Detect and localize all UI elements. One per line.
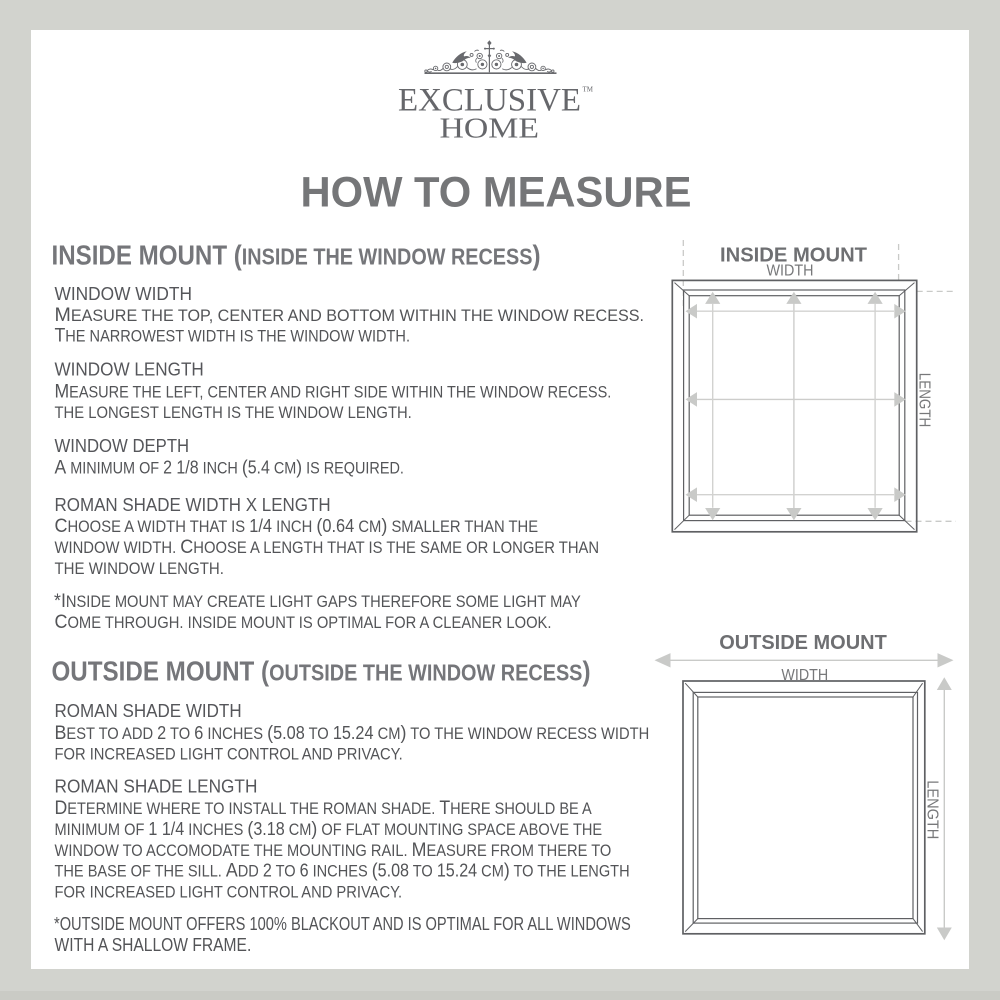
svg-text:COME THROUGH. INSIDE MOUNT IS: COME THROUGH. INSIDE MOUNT IS OPTIMAL FO… (55, 611, 552, 633)
svg-text:WIDTH: WIDTH (767, 263, 814, 280)
svg-text:WINDOW LENGTH: WINDOW LENGTH (55, 359, 204, 380)
svg-text:HOME: HOME (440, 113, 540, 145)
svg-text:THE BASE OF THE SILL. ADD 2 TO: THE BASE OF THE SILL. ADD 2 TO 6 INCHES … (55, 860, 630, 882)
svg-text:WINDOW TO ACCOMODATE THE MOUNT: WINDOW TO ACCOMODATE THE MOUNTING RAIL. … (55, 839, 612, 861)
svg-text:ROMAN SHADE WIDTH X LENGTH: ROMAN SHADE WIDTH X LENGTH (55, 494, 331, 515)
svg-text:A MINIMUM OF 2 1/8 INCH (5.4 C: A MINIMUM OF 2 1/8 INCH (5.4 CM) IS REQU… (55, 457, 404, 479)
svg-text:BEST TO ADD 2 TO 6 INCHES (5.0: BEST TO ADD 2 TO 6 INCHES (5.08 TO 15.24… (55, 722, 650, 744)
svg-text:THE LONGEST LENGTH IS THE WIND: THE LONGEST LENGTH IS THE WINDOW LENGTH. (55, 404, 412, 422)
svg-text:HOW TO MEASURE: HOW TO MEASURE (301, 169, 692, 216)
svg-text:ROMAN SHADE LENGTH: ROMAN SHADE LENGTH (55, 776, 258, 797)
svg-text:MINIMUM OF 1 1/4 INCHES (3.18: MINIMUM OF 1 1/4 INCHES (3.18 CM) OF FLA… (55, 818, 603, 840)
svg-text:OUTSIDE MOUNT: OUTSIDE MOUNT (719, 631, 887, 654)
svg-text:CHOOSE A WIDTH THAT IS 1/4 INC: CHOOSE A WIDTH THAT IS 1/4 INCH (0.64 CM… (55, 515, 539, 537)
svg-text:WINDOW WIDTH. CHOOSE A LENGTH: WINDOW WIDTH. CHOOSE A LENGTH THAT IS TH… (55, 536, 600, 558)
svg-text:OUTSIDE MOUNT (OUTSIDE THE WIN: OUTSIDE MOUNT (OUTSIDE THE WINDOW RECESS… (52, 655, 591, 686)
svg-text:WINDOW WIDTH: WINDOW WIDTH (55, 283, 193, 304)
svg-text:INSIDE MOUNT (INSIDE THE WINDO: INSIDE MOUNT (INSIDE THE WINDOW RECESS) (52, 240, 541, 271)
svg-text:DETERMINE WHERE TO INSTALL THE: DETERMINE WHERE TO INSTALL THE ROMAN SHA… (55, 797, 592, 819)
svg-text:LENGTH: LENGTH (924, 780, 941, 839)
svg-text:*INSIDE MOUNT MAY CREATE LIGHT: *INSIDE MOUNT MAY CREATE LIGHT GAPS THER… (54, 590, 581, 612)
svg-text:WINDOW DEPTH: WINDOW DEPTH (55, 435, 190, 456)
svg-text:THE NARROWEST WIDTH IS THE WIN: THE NARROWEST WIDTH IS THE WINDOW WIDTH. (55, 325, 411, 347)
svg-text:ROMAN SHADE WIDTH: ROMAN SHADE WIDTH (55, 700, 242, 721)
svg-text:FOR INCREASED LIGHT CONTROL AN: FOR INCREASED LIGHT CONTROL AND PRIVACY. (55, 746, 403, 764)
svg-text:FOR INCREASED LIGHT CONTROL AN: FOR INCREASED LIGHT CONTROL AND PRIVACY. (55, 883, 403, 901)
svg-text:MEASURE THE LEFT, CENTER AND R: MEASURE THE LEFT, CENTER AND RIGHT SIDE … (55, 380, 612, 402)
svg-text:MEASURE THE TOP, CENTER AND BO: MEASURE THE TOP, CENTER AND BOTTOM WITHI… (55, 304, 645, 326)
svg-text:TM: TM (583, 86, 594, 94)
svg-text:*OUTSIDE MOUNT OFFERS 100% BLA: *OUTSIDE MOUNT OFFERS 100% BLACKOUT AND … (54, 913, 631, 934)
svg-text:LENGTH: LENGTH (916, 373, 933, 427)
svg-text:WITH A SHALLOW FRAME.: WITH A SHALLOW FRAME. (55, 934, 252, 955)
svg-text:THE WINDOW LENGTH.: THE WINDOW LENGTH. (55, 560, 224, 578)
